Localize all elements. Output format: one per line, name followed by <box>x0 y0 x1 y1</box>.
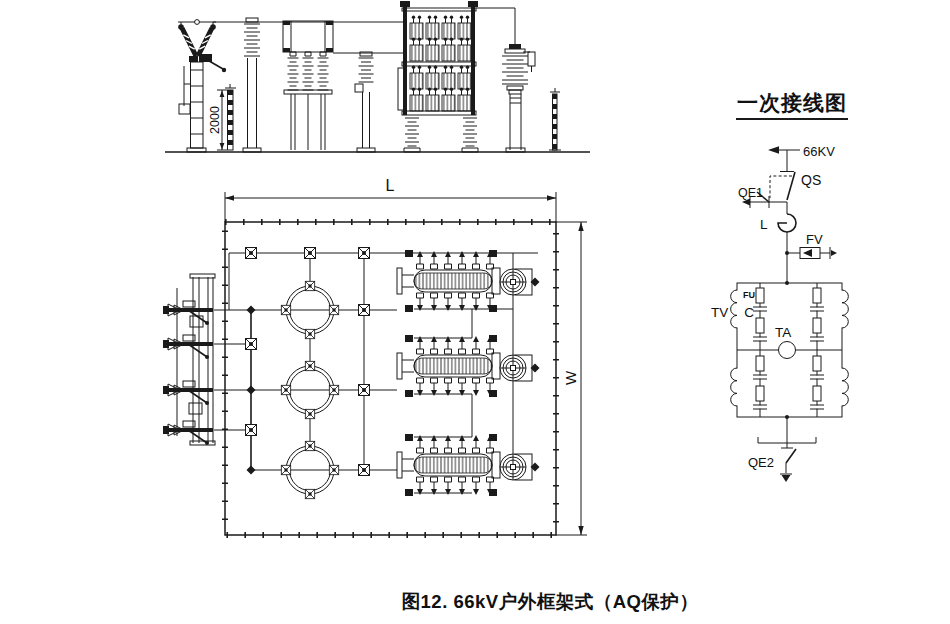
junction-post <box>305 248 316 259</box>
support-insulator-elevation <box>355 52 375 152</box>
post-insulator-elevation <box>243 18 261 152</box>
capacitor-bank-plan-2 <box>397 335 500 397</box>
reactor-cabinet-elevation <box>283 21 333 150</box>
junction-post <box>246 425 257 436</box>
disconnector-phase-arm <box>163 421 213 445</box>
drawing-sheet: 2000 <box>0 0 950 624</box>
junction-post <box>359 248 370 259</box>
wiring-diagram: 一次接线图 66KV QS QE1 L FV <box>711 91 848 482</box>
qe1-label: QE1 <box>738 186 763 200</box>
reactor-symbol: L <box>760 202 796 283</box>
length-dim-label: L <box>386 177 395 194</box>
voltage-label: 66KV <box>803 144 835 159</box>
qs-disconnector-symbol: QS <box>770 172 821 201</box>
fu-label: FU <box>743 290 755 300</box>
junction-node <box>247 466 256 475</box>
fence-post-elevation <box>225 84 236 150</box>
capacitor-rack-elevation <box>398 1 478 152</box>
width-dimension: W <box>556 222 587 535</box>
height-dimension: 2000 <box>208 90 227 150</box>
capacitor-bank-plan-1 <box>397 250 500 312</box>
tv-label: TV <box>711 305 728 320</box>
figure-caption: 图12. 66kV户外框架式（AQ保护） <box>402 591 699 612</box>
ct-plan-2 <box>500 355 540 381</box>
c-label: C <box>744 305 754 320</box>
qs-label: QS <box>801 172 821 188</box>
junction-node <box>247 386 256 395</box>
junction-post <box>359 465 370 476</box>
junction-post <box>359 305 370 316</box>
length-dimension: L <box>225 177 556 222</box>
operating-arm <box>204 58 223 69</box>
tv-ta-unit: TV FU C TA <box>711 281 848 419</box>
qe1-earth-switch-symbol: QE1 <box>738 186 787 208</box>
junction-post <box>246 248 257 259</box>
disconnector-phase-arm <box>163 381 213 405</box>
ta-label: TA <box>775 325 791 340</box>
junction-post <box>359 385 370 396</box>
wiring-title: 一次接线图 <box>737 91 847 114</box>
capacitor-bank-plan-3 <box>397 434 500 496</box>
qe2-earth-switch-symbol: QE2 <box>748 417 816 482</box>
surge-arrester-elevation <box>502 44 535 152</box>
fv-arrester-symbol: FV <box>785 232 837 259</box>
width-dim-label: W <box>562 370 579 385</box>
disconnector-phase-arm <box>163 301 213 325</box>
reactor-label: L <box>760 217 768 232</box>
height-dim-label: 2000 <box>208 106 222 134</box>
disconnector-assembly-plan <box>163 274 215 445</box>
disconnector-phase-arm <box>163 335 213 359</box>
plan-view: L W <box>163 177 587 535</box>
qe2-label: QE2 <box>748 455 774 470</box>
ct-plan-3 <box>500 454 540 480</box>
ct-plan-1 <box>500 269 540 295</box>
junction-node <box>247 306 256 315</box>
fv-label: FV <box>806 232 823 247</box>
earth-rod-elevation <box>549 88 561 150</box>
junction-post <box>246 339 257 350</box>
technical-drawing: 2000 <box>0 0 950 624</box>
incoming-line: 66KV <box>768 144 835 171</box>
elevation-view: 2000 <box>165 1 590 152</box>
